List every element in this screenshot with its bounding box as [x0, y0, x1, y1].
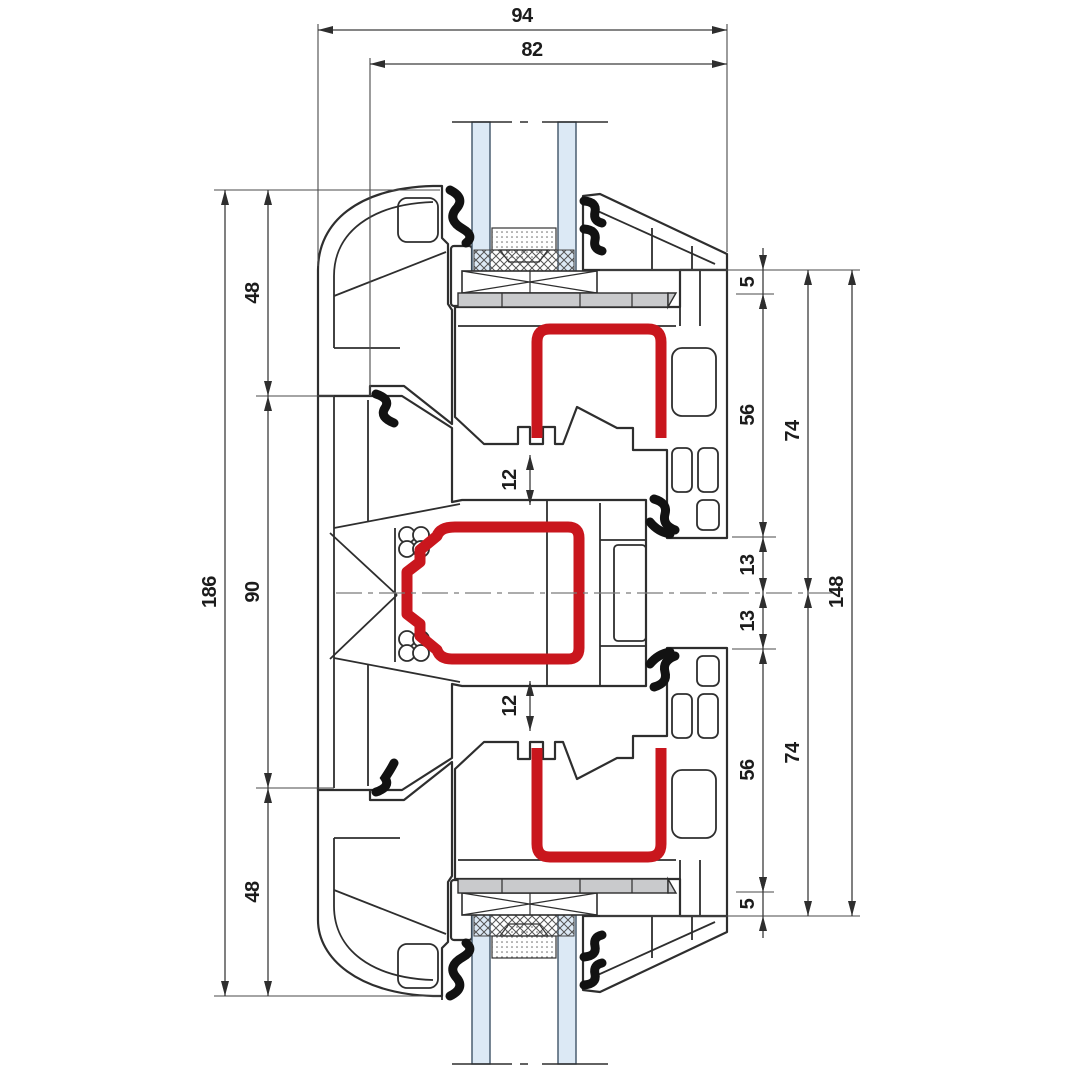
spacer-trapezoid	[500, 250, 548, 262]
dim-label-48-bottom: 48	[242, 881, 264, 903]
dimension-74-bottom: 74	[782, 593, 812, 916]
dim-label-94: 94	[511, 5, 534, 27]
frame-bottom-profile	[318, 762, 452, 1000]
dim-label-5-top: 5	[737, 276, 759, 287]
dimension-48-top: 48	[242, 190, 272, 396]
dimension-12-top: 12	[499, 455, 534, 505]
sash-bottom-glazing-bead	[583, 916, 727, 992]
dimension-186: 186	[199, 190, 229, 996]
dim-label-5-bottom: 5	[737, 898, 759, 909]
glazing-block	[462, 893, 597, 915]
dim-label-56-top: 56	[737, 404, 759, 426]
dimension-82: 82	[370, 39, 727, 68]
spacer-trapezoid	[500, 924, 548, 936]
dimension-48-bottom: 48	[242, 788, 272, 996]
spacer-bar	[492, 936, 556, 958]
dim-label-13-top: 13	[737, 554, 759, 576]
spacer-bar	[492, 228, 556, 250]
dim-label-74-bottom: 74	[782, 741, 804, 764]
sash-top-glazing-bead	[583, 194, 727, 270]
dim-label-48-top: 48	[242, 282, 264, 304]
dimension-12-bottom: 12	[499, 681, 534, 731]
dim-label-13-bottom: 13	[737, 610, 759, 632]
dim-label-82: 82	[521, 39, 543, 61]
dim-label-186: 186	[199, 576, 221, 608]
dimension-94: 94	[318, 5, 727, 34]
dimension-148: 148	[826, 270, 856, 916]
dim-label-90: 90	[242, 581, 264, 603]
glazing-packer-bottom	[458, 879, 676, 893]
frame-top-profile	[318, 186, 452, 424]
glazing-block	[462, 271, 597, 293]
drawing-canvas: 94 82 186 48 90 48 12 12 5 56	[0, 0, 1080, 1080]
gasket-frame-top	[450, 190, 470, 243]
dim-label-12-top: 12	[499, 469, 521, 491]
dim-label-148: 148	[826, 576, 848, 608]
glazing-packer-top	[458, 293, 676, 307]
sash-bottom-body	[455, 648, 727, 916]
dim-label-74-top: 74	[782, 419, 804, 442]
gasket-frame-bottom	[450, 943, 470, 996]
profile-section-drawing: 94 82 186 48 90 48 12 12 5 56	[0, 0, 1080, 1080]
sash-top-body	[455, 270, 727, 538]
dimension-90: 90	[242, 396, 272, 788]
dim-label-56-bottom: 56	[737, 759, 759, 781]
dim-label-12-bottom: 12	[499, 695, 521, 717]
dimension-74-top: 74	[782, 270, 812, 593]
